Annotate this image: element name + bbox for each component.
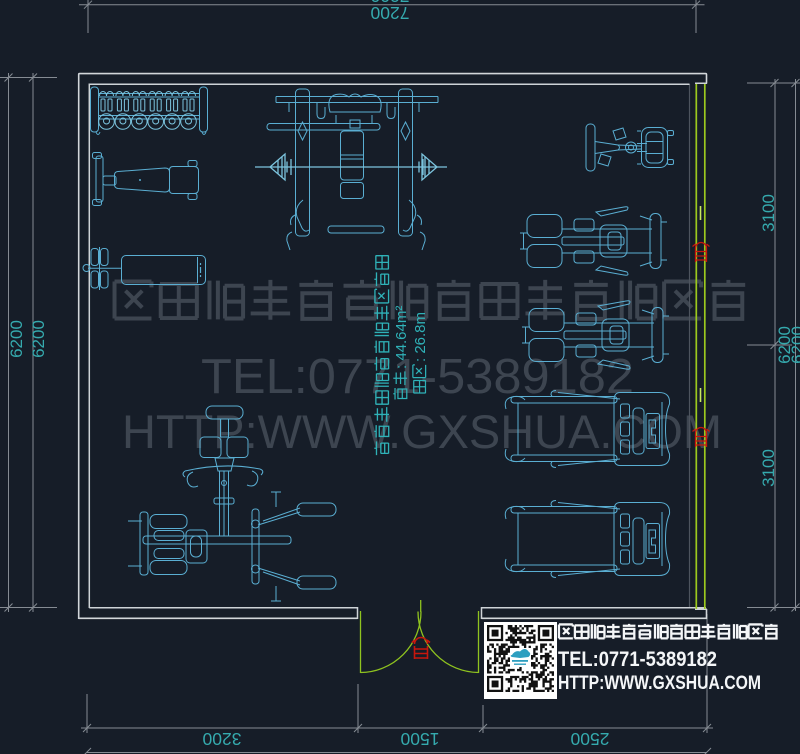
- svg-text:7200: 7200: [370, 0, 409, 6]
- svg-text:6200: 6200: [29, 320, 48, 358]
- svg-text:TEL:0771-5389182: TEL:0771-5389182: [558, 648, 717, 671]
- svg-text:3200: 3200: [202, 729, 241, 749]
- svg-text:6200: 6200: [7, 320, 26, 358]
- svg-text:: 26.8m: : 26.8m: [412, 312, 429, 362]
- svg-text:3100: 3100: [759, 449, 778, 487]
- svg-text:1500: 1500: [400, 729, 439, 749]
- svg-text:2500: 2500: [570, 729, 609, 749]
- svg-text:6200: 6200: [788, 326, 800, 364]
- svg-text:3100: 3100: [759, 194, 778, 232]
- svg-text:HTTP:WWW.GXSHUA.COM: HTTP:WWW.GXSHUA.COM: [558, 672, 761, 694]
- svg-text:: 44.64m²: : 44.64m²: [393, 306, 410, 369]
- svg-text:HTTP:WWW.GXSHUA.COM: HTTP:WWW.GXSHUA.COM: [122, 405, 722, 458]
